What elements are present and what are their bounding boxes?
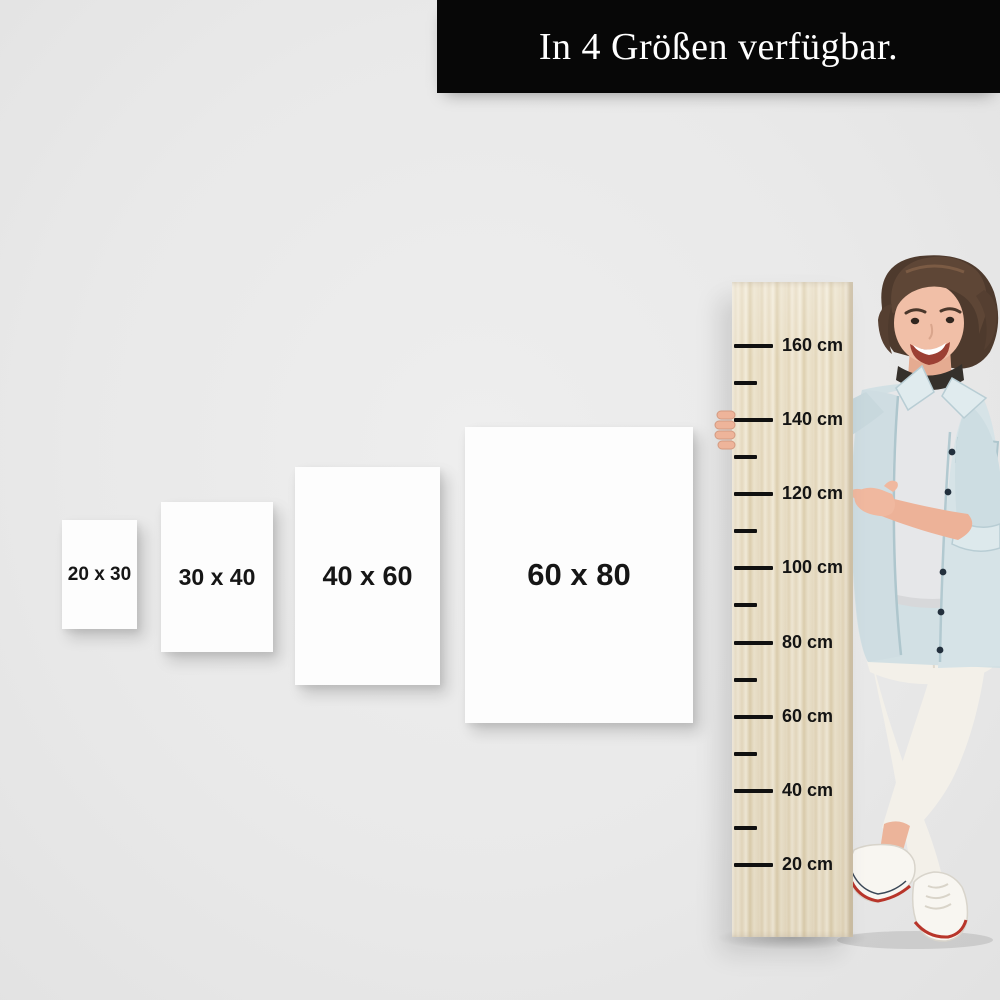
tick-line xyxy=(734,715,773,719)
size-card-60x80: 60 x 80 xyxy=(465,427,693,723)
size-label-20x30: 20 x 30 xyxy=(68,564,131,586)
tick-line xyxy=(734,566,773,570)
ruler-tick-100: 100 cm xyxy=(734,566,843,570)
tick-label: 100 cm xyxy=(782,558,843,576)
banner-text: In 4 Größen verfügbar. xyxy=(539,25,898,69)
tick-line xyxy=(734,603,757,607)
eye-left xyxy=(911,318,919,324)
tick-line xyxy=(734,826,757,830)
product-size-graphic: In 4 Größen verfügbar. 20 x 30 30 x 40 4… xyxy=(0,0,1000,1000)
left-shoe xyxy=(849,845,915,902)
ruler-tick-90 xyxy=(734,603,757,607)
tick-line xyxy=(734,492,773,496)
tick-label: 60 cm xyxy=(782,707,833,725)
ruler-tick-70 xyxy=(734,678,757,682)
ruler-tick-50 xyxy=(734,752,757,756)
tick-line xyxy=(734,344,773,348)
size-label-60x80: 60 x 80 xyxy=(527,557,630,593)
tick-line xyxy=(734,752,757,756)
size-card-30x40: 30 x 40 xyxy=(161,502,273,652)
ruler-tick-80: 80 cm xyxy=(734,641,833,645)
size-label-40x60: 40 x 60 xyxy=(322,561,412,592)
ruler-tick-110 xyxy=(734,529,757,533)
ruler-tick-150 xyxy=(734,381,757,385)
tick-label: 140 cm xyxy=(782,410,843,428)
tick-line xyxy=(734,789,773,793)
ruler-tick-120: 120 cm xyxy=(734,492,843,496)
tick-line xyxy=(734,863,773,867)
availability-banner: In 4 Größen verfügbar. xyxy=(437,0,1000,93)
tick-label: 20 cm xyxy=(782,855,833,873)
gripping-fingers xyxy=(710,403,740,458)
ruler-tick-60: 60 cm xyxy=(734,715,833,719)
size-card-20x30: 20 x 30 xyxy=(62,520,137,629)
height-ruler: 160 cm140 cm120 cm100 cm80 cm60 cm40 cm2… xyxy=(732,282,853,937)
tick-line xyxy=(734,529,757,533)
ruler-tick-20: 20 cm xyxy=(734,863,833,867)
tick-label: 40 cm xyxy=(782,781,833,799)
right-shoe xyxy=(913,872,968,941)
tick-label: 120 cm xyxy=(782,484,843,502)
size-card-40x60: 40 x 60 xyxy=(295,467,440,685)
tick-line xyxy=(734,678,757,682)
tick-line xyxy=(734,381,757,385)
tick-label: 160 cm xyxy=(782,336,843,354)
tick-line xyxy=(734,641,773,645)
ruler-tick-30 xyxy=(734,826,757,830)
tick-label: 80 cm xyxy=(782,633,833,651)
ruler-tick-40: 40 cm xyxy=(734,789,833,793)
eye-right xyxy=(946,317,954,323)
ruler-tick-140: 140 cm xyxy=(734,418,843,422)
ruler-tick-160: 160 cm xyxy=(734,344,843,348)
size-label-30x40: 30 x 40 xyxy=(179,564,256,591)
